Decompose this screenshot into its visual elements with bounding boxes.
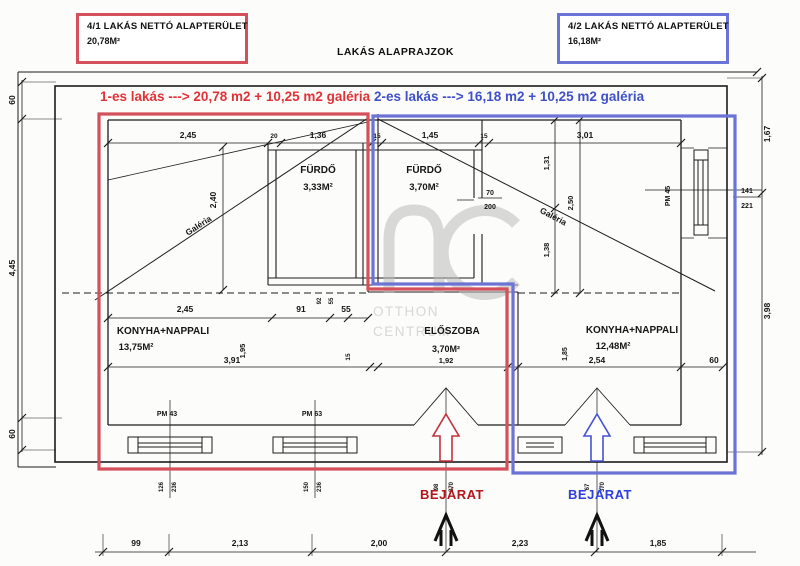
dim-label: 60 — [7, 95, 17, 105]
side-window-pm45 — [694, 150, 708, 235]
window-right-b — [634, 437, 716, 453]
window-label-pm43: PM 43 — [157, 411, 177, 418]
room-area-bath2: 3,70M² — [409, 182, 439, 193]
mid-dimension-labels: 2,45 91 55 92 55 — [177, 297, 351, 314]
room-area-living1: 13,75M² — [119, 342, 154, 353]
door-size-den: 200 — [484, 204, 496, 211]
room-label-living2: KONYHA+NAPPALI — [586, 325, 679, 336]
dim-label: 55 — [329, 297, 335, 304]
room-label-hall: ELŐSZOBA — [424, 324, 480, 337]
galeria-diagonal-left — [95, 118, 368, 300]
dim-label: 91 — [296, 304, 306, 314]
bottom-windows — [128, 437, 716, 453]
window-label-pm63: PM 63 — [302, 411, 322, 418]
dim-label: 15 — [373, 133, 381, 140]
window-right-a — [518, 437, 562, 453]
dim-label: 2,23 — [512, 538, 529, 548]
floor-plan-sheet: 4/1 LAKÁS NETTÓ ALAPTERÜLET 20,78M² LAKÁ… — [0, 0, 800, 566]
dim-label: 1,36 — [310, 130, 327, 140]
dim-label: 55 — [341, 304, 351, 314]
entrance-label-red: BEJÁRAT — [407, 487, 497, 502]
top-dimension-labels: 2,45 20 1,36 15 1,45 15 3,01 — [180, 130, 594, 140]
dim-label: 2,54 — [589, 355, 606, 365]
under-dimension-labels: 3,91 2,54 60 — [224, 355, 719, 365]
room-area-bath1: 3,33M² — [303, 182, 333, 193]
dim-label: 1,45 — [422, 130, 439, 140]
entrance-arrow-red-icon — [433, 414, 459, 461]
door-size-num: 70 — [486, 190, 494, 197]
tiny-opening-size-labels: 126 236 150 236 98 370 67 370 — [159, 481, 606, 492]
dim-label: 15 — [345, 353, 352, 361]
window-size-num: 141 — [741, 188, 753, 195]
dim-label: 2,13 — [232, 538, 249, 548]
dim-label: 3,98 — [762, 302, 772, 319]
dim-label: 15 — [480, 133, 488, 140]
dim-label: 1,31 — [542, 156, 551, 171]
dim-label: 99 — [131, 538, 141, 548]
dim-label: 2,50 — [566, 196, 575, 211]
watermark-c-icon — [443, 211, 516, 295]
galeria-label-left: Galéria — [184, 213, 214, 237]
dim-label: 2,45 — [180, 130, 197, 140]
watermark-line1: OTTHON — [373, 304, 439, 319]
entrance-arrow-blue-icon — [584, 414, 610, 461]
room-area-hall: 3,70M² — [432, 344, 460, 354]
dim-label: 3,91 — [224, 355, 241, 365]
window-label-pm45: PM 45 — [665, 186, 672, 206]
entrance-label-blue: BEJÁRAT — [555, 487, 645, 502]
watermark: OTTHON CENTRUM — [373, 210, 516, 339]
room-width-hall: 1,92 — [439, 356, 454, 365]
dim-label: 1,85 — [650, 538, 667, 548]
dim-label: 236 — [317, 481, 323, 492]
dim-label: 60 — [7, 429, 17, 439]
dim-label: 3,01 — [577, 130, 594, 140]
dim-label: 92 — [317, 297, 323, 304]
dim-label: 4,45 — [7, 259, 17, 276]
dim-label: 2,45 — [177, 304, 194, 314]
dim-label: 236 — [172, 481, 178, 492]
dim-label: 150 — [304, 481, 310, 492]
dim-label: 1,67 — [762, 125, 772, 142]
plan-drawing: OTTHON CENTRUM 2,45 20 1,36 15 1,45 15 3… — [0, 0, 800, 566]
dim-label: 1,38 — [542, 243, 551, 258]
dim-label: 126 — [159, 481, 165, 492]
dim-label: 2,40 — [208, 191, 218, 208]
window-size-den: 221 — [741, 203, 753, 210]
room-label-living1: KONYHA+NAPPALI — [117, 326, 210, 337]
room-label-bath2: FÜRDŐ — [406, 163, 442, 176]
dim-label: 2,00 — [371, 538, 388, 548]
dim-label: 60 — [709, 355, 719, 365]
watermark-house-icon — [389, 210, 439, 293]
dim-label: 1,85 — [562, 347, 569, 361]
dim-label: 20 — [270, 133, 278, 140]
size-fractions: 70 200 141 221 — [484, 188, 753, 211]
room-area-living2: 12,48M² — [596, 341, 631, 352]
room-label-bath1: FÜRDŐ — [300, 163, 336, 176]
